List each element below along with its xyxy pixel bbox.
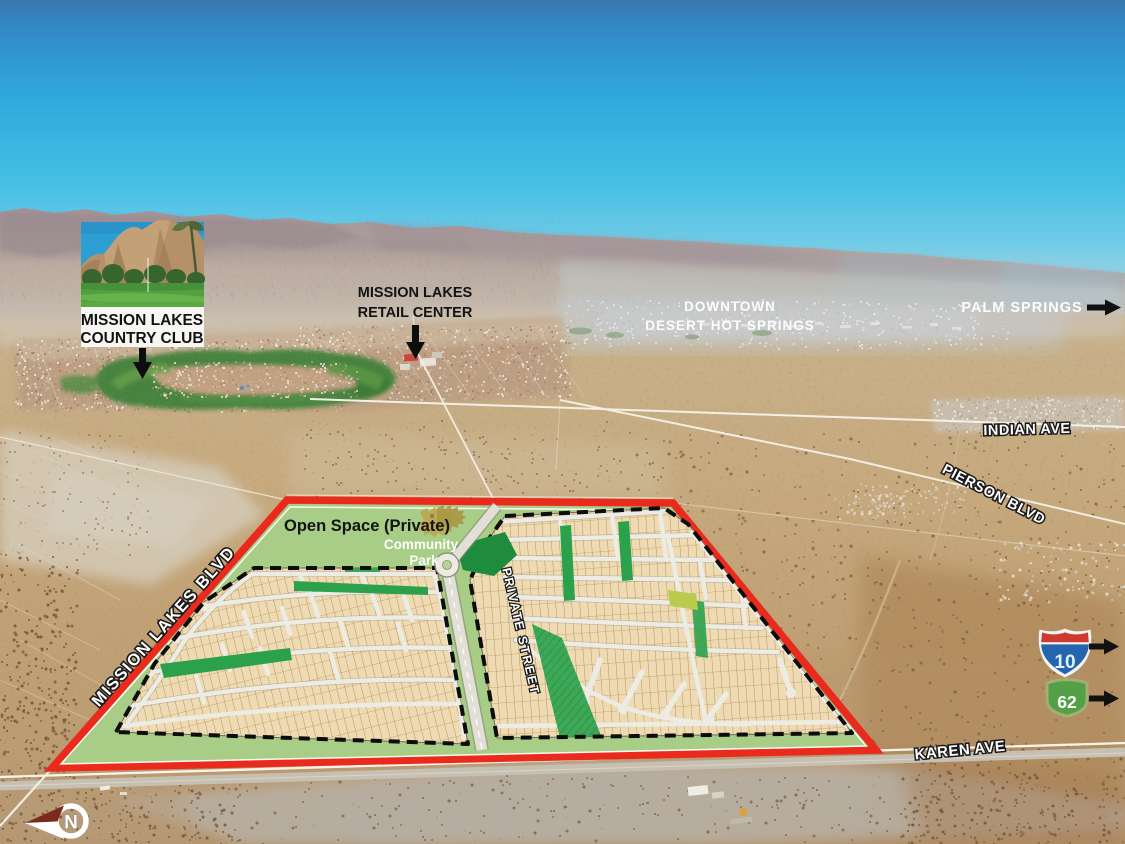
svg-text:Open Space (Private): Open Space (Private) — [284, 517, 450, 535]
svg-text:Community: Community — [384, 537, 459, 552]
svg-text:N: N — [64, 813, 78, 834]
svg-text:DESERT HOT SPRINGS: DESERT HOT SPRINGS — [645, 318, 815, 333]
svg-text:Park: Park — [409, 553, 439, 568]
svg-text:INDIAN AVE: INDIAN AVE — [983, 421, 1071, 439]
svg-text:MISSION LAKES: MISSION LAKES — [358, 285, 473, 301]
svg-text:COUNTRY CLUB: COUNTRY CLUB — [80, 330, 203, 347]
svg-text:MISSION LAKES: MISSION LAKES — [81, 312, 203, 329]
svg-text:62: 62 — [1057, 692, 1077, 712]
svg-text:10: 10 — [1054, 652, 1075, 673]
svg-text:PALM SPRINGS: PALM SPRINGS — [961, 300, 1082, 316]
svg-text:RETAIL CENTER: RETAIL CENTER — [358, 305, 473, 321]
svg-text:DOWNTOWN: DOWNTOWN — [684, 299, 776, 314]
